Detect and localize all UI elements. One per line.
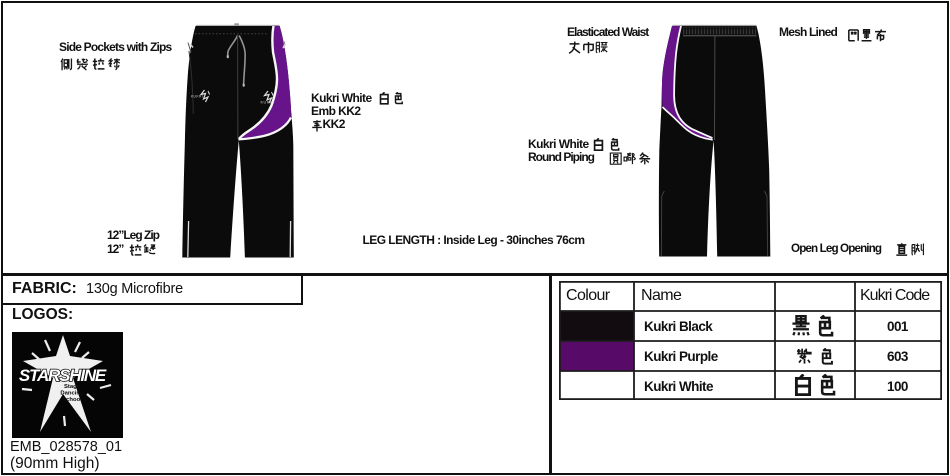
svg-text:School: School	[62, 397, 82, 403]
svg-text:STARSHINE: STARSHINE	[19, 366, 107, 385]
svg-text:Dancing: Dancing	[60, 391, 84, 397]
svg-text:Stage: Stage	[64, 384, 81, 390]
